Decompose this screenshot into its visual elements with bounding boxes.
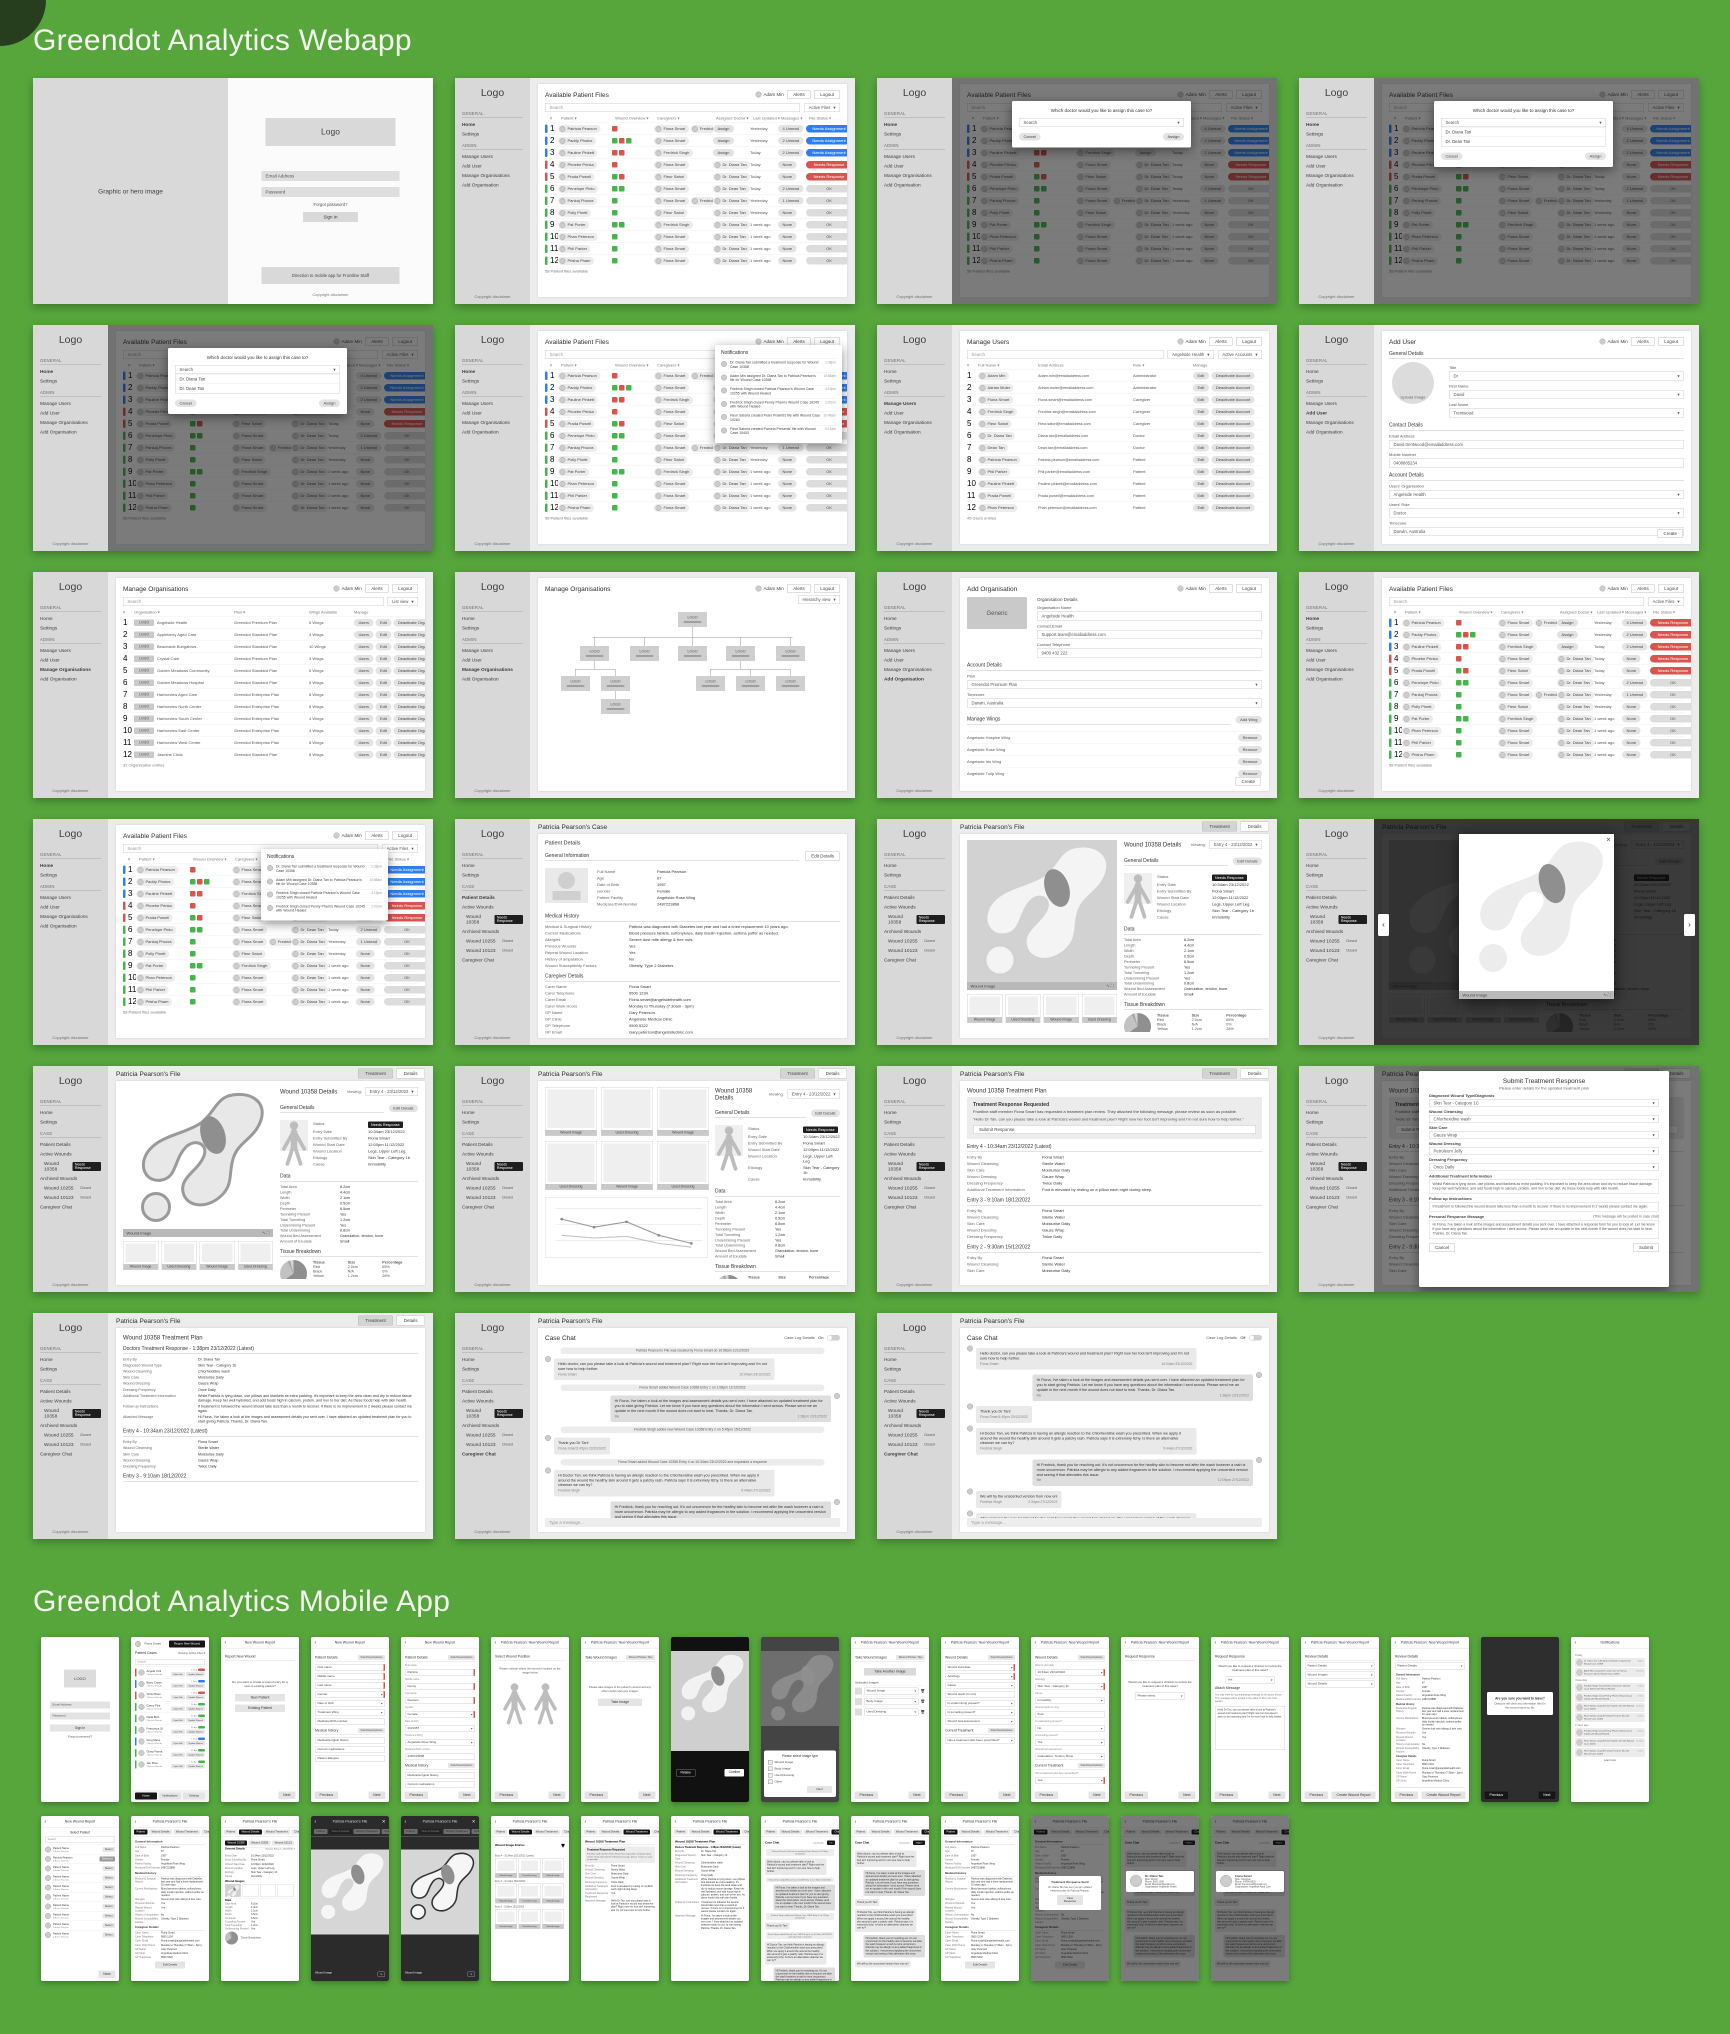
table-row[interactable]: 12Prisha PhamFiona SmartDr. Diana Tan1 w… xyxy=(545,255,840,267)
edit-button[interactable]: Edit xyxy=(1193,372,1209,380)
sidebar-item-patient-details[interactable]: Patient Details xyxy=(462,1142,523,1148)
field-input[interactable]: Has a treatment plan been prescribed?▾ xyxy=(945,1737,1015,1744)
edit-button[interactable]: Edit xyxy=(1193,444,1209,452)
edit-button[interactable]: Edit xyxy=(375,691,391,699)
case-row[interactable]: Francesca Qi2 Active Wounds30 AprOpen Fi… xyxy=(135,1724,205,1736)
table-row[interactable]: 6Penelope PintoFiona SmartDr. Dean TanTo… xyxy=(1389,677,1684,689)
close-icon[interactable]: ✕ xyxy=(382,1819,386,1825)
alerts-button[interactable]: Alerts xyxy=(1631,584,1655,593)
sidebar-item-add-user[interactable]: Add User xyxy=(1306,164,1367,170)
deactivate-organisation-button[interactable]: Deactivate Organisation xyxy=(393,679,425,687)
thumbnail[interactable]: Used Dressing xyxy=(1082,994,1117,1023)
sidebar-item-wound-10358[interactable]: Wound 10358Needs Response xyxy=(888,914,945,925)
sidebar-item-manage-users[interactable]: Manage Users xyxy=(462,648,523,654)
tab-details[interactable]: Details xyxy=(818,1069,847,1079)
case-row[interactable]: Barry Crown2 Active Wounds1 MayOpen File… xyxy=(135,1678,205,1690)
tab-patient[interactable]: Patient xyxy=(224,1830,238,1835)
m-notifications[interactable]: ‹NotificationsTodayDr. Diana Tan submitt… xyxy=(1571,1637,1649,1802)
field-descriptions-chip[interactable]: Field Descriptions xyxy=(358,1728,385,1733)
sidebar-item-home[interactable]: Home xyxy=(40,369,101,375)
edit-button[interactable]: Edit xyxy=(1193,408,1209,416)
deactivate-account-button[interactable]: Deactivate Account xyxy=(1211,492,1254,500)
screen-manage-organisations[interactable]: LogoGENERALHomeSettingsADMINManage Users… xyxy=(33,572,433,798)
figure-target[interactable] xyxy=(533,1682,559,1742)
sidebar-item-add-organisation[interactable]: Add Organisation xyxy=(40,677,101,683)
image-tool-icons[interactable]: ∿ ⛶ xyxy=(1603,993,1610,998)
patient-option-row[interactable]: Patricia Pearson2 Active WoundsSelected xyxy=(45,1854,115,1864)
wing-row[interactable]: Angelside Rose WingRemove xyxy=(967,744,1262,756)
back-icon[interactable]: ‹ xyxy=(585,1819,587,1825)
edit-button[interactable]: Edit xyxy=(375,703,391,711)
m-wound-image-entries[interactable]: ‹Patricia Pearson's FilePatientWound Det… xyxy=(491,1816,569,1981)
create-button[interactable]: Create xyxy=(1235,777,1261,786)
gallery-thumbnail[interactable]: Wound Image xyxy=(545,1087,597,1136)
logout-button[interactable]: Logout xyxy=(814,584,840,593)
submit-button[interactable]: Submit xyxy=(1633,1243,1659,1252)
tab-chat[interactable]: Chat xyxy=(742,1830,749,1835)
select-button[interactable]: Select xyxy=(102,1904,115,1909)
image-tool-icons[interactable]: ∿ ⛶ xyxy=(1106,984,1113,989)
sidebar-item-home[interactable]: Home xyxy=(1306,122,1367,128)
table-row[interactable]: 8Patricia PearsonPatricia.pearson@emaila… xyxy=(967,454,1262,466)
previous-button[interactable]: Previous xyxy=(315,1792,339,1800)
edit-button[interactable]: Edit xyxy=(1193,480,1209,488)
sidebar-item-add-organisation[interactable]: Add Organisation xyxy=(1306,183,1367,189)
close-icon[interactable]: ✕ xyxy=(472,1819,476,1825)
sidebar-item-wound-10123[interactable]: Wound 10123Closed xyxy=(466,1195,523,1201)
table-row[interactable]: 2LOGOAppleberry Aged CareGreendot Standa… xyxy=(123,629,418,641)
field-input[interactable]: Pearson xyxy=(405,1697,475,1704)
sidebar-item-manage-users[interactable]: Manage Users xyxy=(1306,154,1367,160)
assign-button[interactable]: Assign xyxy=(1557,643,1578,651)
back-icon[interactable]: ‹ xyxy=(855,1819,857,1825)
deactivate-account-button[interactable]: Deactivate Account xyxy=(1211,432,1254,440)
back-icon[interactable]: ‹ xyxy=(1035,1640,1037,1646)
table-row[interactable]: 3Pauline PinkettFredrick SinghAssignToda… xyxy=(545,147,840,159)
m-case-chat[interactable]: ‹Patricia Pearson's FilePatientWound Det… xyxy=(851,1816,929,1981)
previous-button[interactable]: Previous xyxy=(945,1792,969,1800)
thumbnail[interactable]: Wound Image xyxy=(123,1241,158,1270)
screen-add-organisation[interactable]: LogoGENERALHomeSettingsADMINManage Users… xyxy=(877,572,1277,798)
delete-icon[interactable]: 🗑 xyxy=(921,1689,925,1693)
sidebar-item-patient-details[interactable]: Patient Details xyxy=(1306,895,1367,901)
tab[interactable]: Wound Treatment xyxy=(353,1829,380,1834)
submit-response-button[interactable]: Submit Response xyxy=(973,1125,1256,1134)
sidebar-item-manage-organisations[interactable]: Manage Organisations xyxy=(40,420,101,426)
table-row[interactable]: 4LOGOCrystal CareGreendot Premium Plan3 … xyxy=(123,653,418,665)
lightbox-arrow-right[interactable]: › xyxy=(1684,914,1695,936)
deactivate-account-button[interactable]: Deactivate Account xyxy=(1211,396,1254,404)
next-button[interactable]: Next xyxy=(548,1792,565,1800)
review-section-toggle[interactable]: Patient Details▾ xyxy=(1395,1663,1465,1670)
thumbnail[interactable]: Wound Image xyxy=(1044,994,1079,1023)
sidebar-item-wound-10255[interactable]: Wound 10255Closed xyxy=(44,1433,101,1439)
table-row[interactable]: 9Phil ParkerPhil.parker@emailaddress.com… xyxy=(967,466,1262,478)
image-type-option[interactable]: Body Image xyxy=(768,1767,832,1772)
image-type-select[interactable]: Used Dressing▾ xyxy=(864,1709,919,1716)
back-icon[interactable]: ‹ xyxy=(225,1640,227,1646)
assign-button[interactable]: Assign xyxy=(1557,631,1578,639)
back-icon[interactable]: ‹ xyxy=(1395,1640,1397,1646)
take-image-button[interactable]: Take Image xyxy=(598,1699,642,1707)
table-row[interactable]: 2Paddy PhotosFiona SmartAssignYesterday2… xyxy=(545,135,840,147)
back-icon[interactable]: ‹ xyxy=(945,1819,947,1825)
sidebar-item-wound-10123[interactable]: Wound 10123Closed xyxy=(466,1442,523,1448)
m-wound-details-blank[interactable]: ‹Patricia Pearson: New Wound ReportWound… xyxy=(941,1637,1019,1802)
field-input[interactable]: 2487223898 xyxy=(405,1753,475,1760)
sidebar-item-manage-users[interactable]: Manage Users xyxy=(462,401,523,407)
sidebar-item-patient-details[interactable]: Patient Details xyxy=(40,1142,101,1148)
patient-option-row[interactable]: Patient Name2 Active WoundsSelect xyxy=(45,1864,115,1874)
previous-button[interactable]: Previous xyxy=(585,1792,609,1800)
select-button[interactable]: Select xyxy=(102,1914,115,1919)
tab[interactable]: Chat xyxy=(472,1829,479,1834)
entry-thumb[interactable]: Used Dressing xyxy=(519,1858,541,1878)
users-button[interactable]: Users xyxy=(354,679,373,687)
back-icon[interactable]: ‹ xyxy=(1575,1640,1577,1646)
assign-button[interactable]: Assign xyxy=(713,125,734,133)
deactivate-organisation-button[interactable]: Deactivate Organisation xyxy=(393,643,425,651)
deactivate-organisation-button[interactable]: Deactivate Organisation xyxy=(393,619,425,627)
tab-wound-treatment[interactable]: Wound Treatment xyxy=(983,1830,1010,1835)
sidebar-item-home[interactable]: Home xyxy=(884,616,945,622)
table-row[interactable]: 5Prada PowellFleur SatoriDr. Diana TanTo… xyxy=(545,171,840,183)
log-value[interactable]: Hidden xyxy=(913,1841,925,1846)
upload-image-area[interactable]: Upload Image xyxy=(1389,362,1437,418)
deactivate-account-button[interactable]: Deactivate Account xyxy=(1211,468,1254,476)
review-section-toggle[interactable]: Patient Details▾ xyxy=(1305,1663,1375,1670)
screen-manage-users[interactable]: LogoGENERALHomeSettingsADMINManage Users… xyxy=(877,325,1277,551)
assign-confirm-button[interactable]: Assign xyxy=(1163,133,1184,141)
table-row[interactable]: 3LOGOBeachside BungalowsGreendot Standar… xyxy=(123,641,418,653)
gallery-thumbnail[interactable]: Used Dressing xyxy=(601,1087,653,1136)
notification-item[interactable]: Adam Min assigned Dr. Diana Tan to Patri… xyxy=(1575,1668,1645,1677)
case-row[interactable]: Daria Binh2 Active Wounds30 AprOpen File… xyxy=(135,1713,205,1725)
sidebar-item-wound-10358[interactable]: Wound 10358Needs Response xyxy=(1310,1161,1367,1172)
edit-button[interactable]: Edit xyxy=(375,727,391,735)
nav-home[interactable]: Home xyxy=(135,1793,157,1800)
users-button[interactable]: Users xyxy=(354,703,373,711)
m-image-viewer-outlined[interactable]: ‹Patricia Pearson's File✕PatientWound De… xyxy=(401,1816,479,1981)
open-file-button[interactable]: Open File xyxy=(171,1684,185,1689)
field-input[interactable]: 5mm xyxy=(1035,1711,1105,1718)
notification-item[interactable]: Fleur Satoria created Pamela Presents' f… xyxy=(1575,1748,1645,1757)
password-field[interactable]: Password xyxy=(262,187,400,197)
tab-treatment[interactable]: Treatment xyxy=(1202,822,1237,832)
tab-wound-details[interactable]: Wound Details xyxy=(509,1830,532,1835)
m-report-new-wound[interactable]: ‹New Wound ReportReport New WoundDo you … xyxy=(221,1637,299,1802)
users-button[interactable]: Users xyxy=(354,751,373,759)
tab-patient[interactable]: Patient xyxy=(584,1830,598,1835)
patient-option-row[interactable]: Patient Name2 Active WoundsSelect xyxy=(45,1892,115,1902)
search-input[interactable]: Search xyxy=(45,1837,115,1843)
users-button[interactable]: Users xyxy=(354,715,373,723)
sidebar-item-add-user[interactable]: Add User xyxy=(884,411,945,417)
open-file-button[interactable]: Open File xyxy=(171,1695,185,1700)
update-wound-button[interactable]: Update Wound xyxy=(186,1684,205,1689)
table-row[interactable]: 7LOGOHarborview Aged CareGreendot Enterp… xyxy=(123,689,418,701)
chart-icon[interactable]: ∿ xyxy=(377,1972,385,1978)
m-review-details-expanded[interactable]: ‹Patricia Pearson: New Wound ReportRevie… xyxy=(1391,1637,1469,1802)
users-organisation-input[interactable]: Angelside Health▾ xyxy=(1389,490,1684,499)
sidebar-item-add-user[interactable]: Add User xyxy=(40,658,101,664)
tab[interactable]: Patient xyxy=(314,1829,328,1834)
open-file-button[interactable]: Open File xyxy=(171,1764,185,1769)
field-input[interactable]: Is tunneling present?▾ xyxy=(945,1709,1015,1716)
table-row[interactable]: 11Phil ParkerFiona SmartDr. Diana Tan1 w… xyxy=(545,243,840,255)
wing-row[interactable]: Angelside Tulip WingRemove xyxy=(967,768,1262,780)
dressing-frequency-select[interactable]: Once Daily▾ xyxy=(1429,1163,1659,1171)
sidebar-item-patient-details[interactable]: Patient Details xyxy=(1306,1142,1367,1148)
gallery-thumbnail[interactable]: Wound Image xyxy=(601,1141,653,1190)
edit-button[interactable]: Edit xyxy=(1193,396,1209,404)
contact-telephone-input[interactable]: 9400 432 222 xyxy=(1037,649,1262,658)
sidebar-item-home[interactable]: Home xyxy=(40,1110,101,1116)
notification-item[interactable]: Fredrick Singh closed Penny Pham's Wound… xyxy=(1575,1693,1645,1702)
sidebar-item-add-organisation[interactable]: Add Organisation xyxy=(884,183,945,189)
tab-patient[interactable]: Patient xyxy=(944,1830,958,1835)
update-wound-button[interactable]: Update Wound xyxy=(186,1695,205,1700)
select-button[interactable]: Select xyxy=(102,1847,115,1852)
previous-button[interactable]: Previous xyxy=(405,1792,429,1800)
sidebar-item-wound-10358[interactable]: Wound 10358Needs Response xyxy=(1310,914,1367,925)
chat-input[interactable]: Type a message... xyxy=(545,1518,840,1527)
screen-patient-files-notifications[interactable]: LogoGENERALHomeSettingsADMINManage Users… xyxy=(455,325,855,551)
table-row[interactable]: 9Pat PorterFredrick SinghDr. Diana Tan1 … xyxy=(545,466,840,478)
image-type-option[interactable]: Wound Image xyxy=(768,1760,832,1765)
thumbnail[interactable]: Wound Image xyxy=(967,994,1002,1023)
entry-select[interactable]: Viewing: Entry 4 - 23/12/2022 ▾ xyxy=(265,1848,295,1851)
sidebar-item-settings[interactable]: Settings xyxy=(40,1367,101,1373)
search-input[interactable]: Search xyxy=(545,103,800,112)
tab-chat[interactable]: Chat xyxy=(1012,1830,1019,1835)
sidebar-item-wound-10123[interactable]: Wound 10123Closed xyxy=(44,1442,101,1448)
sidebar-item-add-user[interactable]: Add User xyxy=(462,411,523,417)
table-row[interactable]: 11Prada PowellPrada.powell@emailaddress.… xyxy=(967,490,1262,502)
nav-settings[interactable]: Settings xyxy=(183,1793,205,1800)
users-role-input[interactable]: Doctor▾ xyxy=(1389,509,1684,518)
sidebar-item-caregiver-chat[interactable]: Caregiver Chat xyxy=(462,958,523,964)
timezone-input[interactable]: Darwin, Australia▾ xyxy=(967,699,1262,708)
entry-select[interactable]: Entry 4 - 23/12/2022▾ xyxy=(1209,840,1262,849)
organisation-name-input[interactable]: Angelside Health xyxy=(1037,612,1262,621)
tab-patient[interactable]: Patient xyxy=(674,1830,688,1835)
screen-patient-files-menu[interactable]: LogoGENERALHomeSettingsADMINManage Users… xyxy=(33,819,433,1045)
m-login[interactable]: LOGOEmail AddressPasswordSign InForgot p… xyxy=(41,1637,119,1802)
sidebar-item-settings[interactable]: Settings xyxy=(1306,1120,1367,1126)
assign-search-select[interactable]: Search▾ xyxy=(1441,118,1606,127)
sidebar-item-wound-10358[interactable]: Wound 10358Needs Response xyxy=(466,1408,523,1419)
sidebar-item-home[interactable]: Home xyxy=(1306,369,1367,375)
notification-item[interactable]: Fredrick Singh closed Penny Pham's Wound… xyxy=(721,398,836,411)
lightbox-arrow-left[interactable]: ‹ xyxy=(1378,914,1389,936)
field-input[interactable]: Yes▾ xyxy=(1035,1777,1105,1784)
wound-tab-2[interactable]: Wound 10123 xyxy=(272,1841,294,1846)
field-input[interactable]: Medicare/DVA number xyxy=(315,1718,385,1725)
files-filter-select[interactable]: Active Files▾ xyxy=(1648,597,1684,606)
deactivate-organisation-button[interactable]: Deactivate Organisation xyxy=(393,739,425,747)
wound-image-main[interactable]: Wound Image∿ ⛶ xyxy=(967,840,1117,990)
sidebar-item-settings[interactable]: Settings xyxy=(462,1120,523,1126)
field-input[interactable]: Patient allergies xyxy=(315,1755,385,1762)
entry-thumb[interactable]: Wound Image xyxy=(542,1858,564,1878)
next-button[interactable]: Next xyxy=(908,1792,925,1800)
files-filter-select[interactable]: Active Files▾ xyxy=(804,103,840,112)
wound-tab-0[interactable]: Wound 10358 xyxy=(225,1841,247,1846)
view-select[interactable]: Hierarchy view▾ xyxy=(798,595,840,604)
figure-target[interactable] xyxy=(502,1682,528,1742)
notification-item[interactable]: Dr. Diana Tan submitted a treatment resp… xyxy=(267,863,382,876)
back-icon[interactable]: ‹ xyxy=(315,1819,317,1825)
sidebar-item-wound-10358[interactable]: Wound 10358Needs Response xyxy=(466,1161,523,1172)
first-name-input[interactable]: David▾ xyxy=(1449,390,1684,399)
org-node[interactable]: LOGO xyxy=(601,699,630,714)
sidebar-item-settings[interactable]: Settings xyxy=(884,132,945,138)
back-icon[interactable]: ‹ xyxy=(945,1640,947,1646)
table-row[interactable]: 6LOGOGolden Meadows HospitalGreendot Sta… xyxy=(123,677,418,689)
open-file-button[interactable]: Open File xyxy=(171,1672,185,1677)
screen-case-chat-log[interactable]: LogoGENERALHomeSettingsCASEPatient Detai… xyxy=(455,1313,855,1539)
entry-thumb[interactable]: Wound Image xyxy=(495,1909,517,1929)
sidebar-item-add-organisation[interactable]: Add Organisation xyxy=(884,430,945,436)
assign-search-select[interactable]: Search▾ xyxy=(175,365,340,374)
sidebar-item-add-user[interactable]: Add User xyxy=(884,164,945,170)
sidebar-item-caregiver-chat[interactable]: Caregiver Chat xyxy=(884,1205,945,1211)
case-row[interactable]: Angela York2 Active Wounds1 MayOpen File… xyxy=(135,1667,205,1679)
tab-chat[interactable]: Chat xyxy=(922,1830,929,1835)
alerts-button[interactable]: Alerts xyxy=(365,831,389,840)
sidebar-item-manage-organisations[interactable]: Manage Organisations xyxy=(1306,667,1367,673)
assign-button[interactable]: Assign xyxy=(713,137,734,145)
remove-wing-button[interactable]: Remove xyxy=(1238,746,1262,754)
screen-wound-details-white[interactable]: LogoGENERALHomeSettingsCASEPatient Detai… xyxy=(33,1066,433,1292)
m-take-wound-images[interactable]: ‹Patricia Pearson: New Wound ReportTake … xyxy=(581,1637,659,1802)
sidebar-item-wound-10255[interactable]: Wound 10255Closed xyxy=(888,1186,945,1192)
next-button[interactable]: Create Wound Report xyxy=(1332,1792,1376,1800)
screen-image-lightbox[interactable]: LogoGENERALHomeSettingsCASEPatient Detai… xyxy=(1299,819,1699,1045)
edit-button[interactable]: Edit xyxy=(1193,504,1209,512)
alerts-button[interactable]: Alerts xyxy=(1209,584,1233,593)
next-button[interactable]: Next xyxy=(368,1792,385,1800)
deactivate-organisation-button[interactable]: Deactivate Organisation xyxy=(393,631,425,639)
field-input[interactable]: First name xyxy=(315,1664,385,1671)
sidebar-item-home[interactable]: Home xyxy=(462,863,523,869)
sidebar-item-caregiver-chat[interactable]: Caregiver Chat xyxy=(462,1452,523,1458)
tab-chat[interactable]: Chat xyxy=(652,1830,659,1835)
field-input[interactable]: Female▾ xyxy=(405,1711,475,1718)
sidebar-item-add-user[interactable]: Add User xyxy=(884,658,945,664)
edit-button[interactable]: Edit xyxy=(1193,384,1209,392)
sidebar-item-home[interactable]: Home xyxy=(462,122,523,128)
open-file-button[interactable]: Open File xyxy=(171,1753,185,1758)
back-icon[interactable]: ‹ xyxy=(495,1819,497,1825)
sidebar-item-add-user[interactable]: Add User xyxy=(1306,658,1367,664)
tab-chat[interactable]: Chat xyxy=(562,1830,569,1835)
open-file-button[interactable]: Open File xyxy=(171,1730,185,1735)
m-treatment-full[interactable]: ‹Patricia Pearson's FilePatientWound Det… xyxy=(671,1816,749,1981)
tab-treatment[interactable]: Treatment xyxy=(358,1316,393,1326)
sidebar-item-caregiver-chat[interactable]: Caregiver Chat xyxy=(884,1452,945,1458)
notification-item[interactable]: Fleur Satoria created Peter Prakhit's fi… xyxy=(721,412,836,425)
sidebar-item-home[interactable]: Home xyxy=(462,369,523,375)
sidebar-item-wound-10123[interactable]: Wound 10123Closed xyxy=(44,1195,101,1201)
deactivate-organisation-button[interactable]: Deactivate Organisation xyxy=(393,715,425,723)
sidebar-item-home[interactable]: Home xyxy=(462,1357,523,1363)
deactivate-organisation-button[interactable]: Deactivate Organisation xyxy=(393,691,425,699)
timezone-input[interactable]: Darwin, Australia▾ xyxy=(1389,527,1684,536)
sidebar-item-patient-details[interactable]: Patient Details xyxy=(884,1389,945,1395)
image-type-select[interactable]: Body Image▾ xyxy=(864,1698,919,1705)
screen-wound-gallery[interactable]: LogoGENERALHomeSettingsCASEPatient Detai… xyxy=(455,1066,855,1292)
email-field[interactable]: Email Address xyxy=(50,1702,110,1709)
m-select-patient[interactable]: ‹New Wound ReportSelect PatientSearchPat… xyxy=(41,1816,119,1981)
previous-button[interactable]: Previous xyxy=(1035,1792,1059,1800)
tab-chat[interactable]: Chat xyxy=(292,1830,299,1835)
screen-login[interactable]: Graphic or hero imageLogoEmail AddressPa… xyxy=(33,78,433,304)
logout-button[interactable]: Logout xyxy=(392,831,418,840)
sidebar-item-manage-users[interactable]: Manage Users xyxy=(884,154,945,160)
field-input[interactable]: 2/3/1957▾ xyxy=(405,1725,475,1732)
edit-details-button[interactable]: Edit Details xyxy=(155,1961,185,1968)
patient-option-row[interactable]: Patient Name2 Active WoundsSelect xyxy=(45,1873,115,1883)
tab-patient[interactable]: Patient xyxy=(854,1830,868,1835)
table-row[interactable]: 7Pankaj PhocraFiona SmartFredrick SinghD… xyxy=(1389,689,1684,701)
sidebar-item-wound-10123[interactable]: Wound 10123Closed xyxy=(888,1442,945,1448)
case-row[interactable]: Chris Pham2 Active Wounds1 MayOpen FileU… xyxy=(135,1690,205,1702)
sidebar-item-home[interactable]: Home xyxy=(884,863,945,869)
field-input[interactable]: Wound bed assessment▾ xyxy=(945,1718,1015,1725)
m-uploaded-images[interactable]: ‹Patricia Pearson: New Wound ReportTake … xyxy=(851,1637,929,1802)
users-button[interactable]: Users xyxy=(354,691,373,699)
table-row[interactable]: 11Phil ParkerFiona SmartDr. Diana Tan1 w… xyxy=(123,984,418,996)
forgot-password-link[interactable]: Forgot password? xyxy=(68,1736,92,1739)
m-review-details[interactable]: ‹Patricia Pearson: New Wound ReportRevie… xyxy=(1301,1637,1379,1802)
m-select-wound-position[interactable]: ‹Patricia Pearson: New Wound ReportSelec… xyxy=(491,1637,569,1802)
cancel-button[interactable]: Cancel xyxy=(1441,153,1462,161)
tab-wound-treatment[interactable]: Wound Treatment xyxy=(623,1830,650,1835)
field-input[interactable]: Wound depth (in mm) xyxy=(945,1691,1015,1698)
sidebar-item-wound-10255[interactable]: Wound 10255Closed xyxy=(466,1433,523,1439)
sidebar-item-manage-users[interactable]: Manage Users xyxy=(40,895,101,901)
logout-button[interactable]: Logout xyxy=(1658,337,1684,346)
sidebar-item-add-organisation[interactable]: Add Organisation xyxy=(40,430,101,436)
email-address-input[interactable]: David.trentwood@emailaddress.com xyxy=(1389,440,1684,449)
org-node[interactable]: LOGO xyxy=(776,646,805,661)
org-node[interactable]: LOGO xyxy=(678,612,707,627)
screen-assign-doctor-dropdown[interactable]: LogoGENERALHomeSettingsADMINManage Users… xyxy=(1299,78,1699,304)
sidebar-item-home[interactable]: Home xyxy=(462,616,523,622)
sidebar-item-patient-details[interactable]: Patient Details xyxy=(40,1389,101,1395)
notification-item[interactable]: Fleur Satoria created Pamela Presents' f… xyxy=(1575,1713,1645,1722)
sidebar-item-settings[interactable]: Settings xyxy=(884,1367,945,1373)
entry-thumb[interactable]: Wound Image xyxy=(542,1884,564,1904)
field-input[interactable]: Medical/surgical history xyxy=(315,1737,385,1744)
sidebar-item-wound-10358[interactable]: Wound 10358Needs Response xyxy=(44,1408,101,1419)
previous-button[interactable]: Previous xyxy=(855,1792,879,1800)
field-input[interactable]: Date of birth▾ xyxy=(315,1700,385,1707)
search-input[interactable]: Search xyxy=(135,1659,205,1665)
table-row[interactable]: 2Adrian MulerAdrian.muler@emailaddress.c… xyxy=(967,382,1262,394)
sidebar-item-caregiver-chat[interactable]: Caregiver Chat xyxy=(1306,1205,1367,1211)
sidebar-item-wound-10255[interactable]: Wound 10255Closed xyxy=(888,939,945,945)
deactivate-account-button[interactable]: Deactivate Account xyxy=(1211,504,1254,512)
field-input[interactable]: Last name xyxy=(315,1682,385,1689)
deactivate-account-button[interactable]: Deactivate Account xyxy=(1211,444,1254,452)
request-select[interactable]: Please select▾ xyxy=(1135,1693,1185,1700)
assign-button[interactable]: Assign xyxy=(713,149,734,157)
tab-patient[interactable]: Patient xyxy=(134,1830,148,1835)
table-row[interactable]: 10Pauline PinkettPauline.pinkett@emailad… xyxy=(967,478,1262,490)
